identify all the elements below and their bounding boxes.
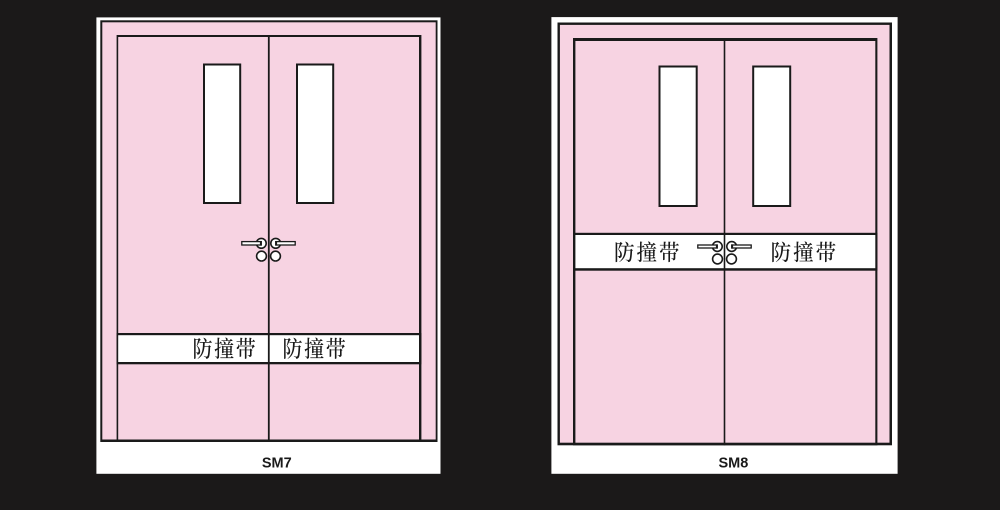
svg-text:SM7: SM7 <box>262 456 292 472</box>
svg-text:SM8: SM8 <box>718 456 748 472</box>
